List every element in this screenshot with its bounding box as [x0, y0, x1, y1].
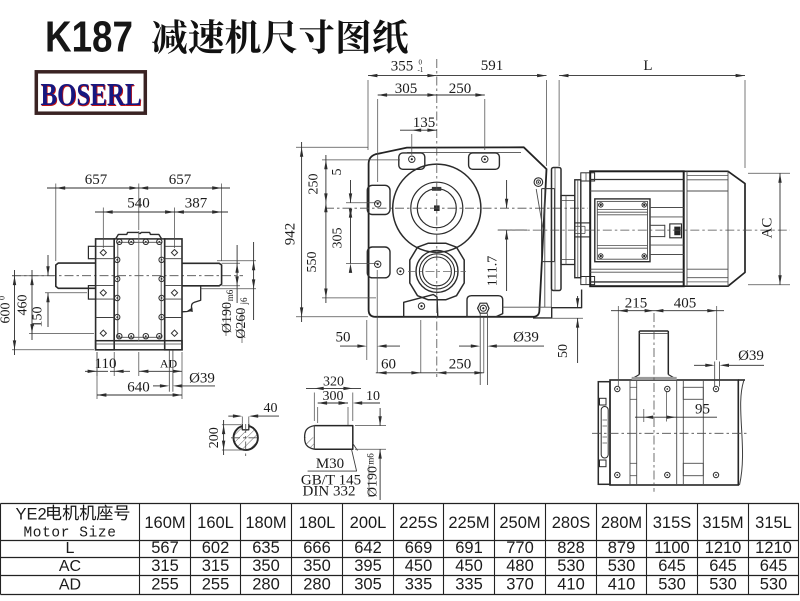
svg-text:591: 591: [481, 58, 504, 74]
svg-text:m6: m6: [366, 453, 376, 465]
svg-text:Ø190: Ø190: [366, 466, 381, 497]
svg-text:AD: AD: [160, 357, 178, 371]
svg-text:-1: -1: [418, 66, 424, 74]
svg-text:40: 40: [264, 401, 278, 416]
svg-text:95: 95: [695, 402, 710, 418]
svg-text:200L: 200L: [350, 514, 387, 532]
svg-text:280: 280: [252, 576, 280, 594]
svg-text:160L: 160L: [197, 514, 234, 532]
svg-text:387: 387: [185, 196, 208, 212]
svg-text:250: 250: [449, 81, 472, 97]
svg-text:530: 530: [608, 557, 636, 575]
svg-text:Ø39: Ø39: [513, 330, 539, 346]
svg-text:L: L: [66, 540, 75, 557]
svg-text:Ø190: Ø190: [220, 302, 235, 333]
svg-text:315L: 315L: [755, 514, 792, 532]
svg-text:540: 540: [127, 196, 150, 212]
svg-text:642: 642: [354, 539, 382, 557]
svg-text:215: 215: [625, 296, 648, 312]
svg-text:m6: m6: [225, 289, 235, 301]
svg-text:530: 530: [709, 576, 737, 594]
svg-text:691: 691: [455, 539, 483, 557]
svg-text:315S: 315S: [653, 514, 692, 532]
svg-text:370: 370: [506, 576, 534, 594]
svg-text:335: 335: [455, 576, 483, 594]
svg-text:5: 5: [330, 169, 345, 176]
svg-text:315M: 315M: [702, 514, 743, 532]
svg-text:0: 0: [0, 296, 7, 300]
svg-text:180M: 180M: [245, 514, 286, 532]
svg-text:DIN 332: DIN 332: [303, 484, 356, 500]
svg-text:450: 450: [455, 557, 483, 575]
svg-text:669: 669: [405, 539, 433, 557]
svg-text:305: 305: [395, 81, 418, 97]
svg-text:j6: j6: [239, 297, 249, 306]
svg-text:180L: 180L: [299, 514, 336, 532]
svg-text:602: 602: [202, 539, 230, 557]
svg-text:L: L: [643, 58, 652, 74]
svg-text:635: 635: [252, 539, 280, 557]
svg-text:645: 645: [760, 557, 788, 575]
svg-text:942: 942: [283, 223, 299, 246]
svg-text:280S: 280S: [552, 514, 591, 532]
svg-text:280M: 280M: [601, 514, 642, 532]
svg-text:567: 567: [151, 539, 179, 557]
svg-text:530: 530: [760, 576, 788, 594]
svg-text:315: 315: [202, 557, 230, 575]
svg-text:Ø39: Ø39: [738, 348, 764, 364]
svg-text:355: 355: [391, 59, 414, 75]
svg-text:645: 645: [709, 557, 737, 575]
svg-text:225M: 225M: [448, 514, 489, 532]
svg-text:111.7: 111.7: [486, 256, 501, 286]
svg-text:305: 305: [331, 228, 346, 249]
svg-text:K187: K187: [45, 13, 133, 62]
svg-text:AD: AD: [59, 577, 81, 594]
svg-text:335: 335: [405, 576, 433, 594]
svg-text:10: 10: [366, 389, 380, 404]
svg-text:YE2: YE2: [16, 506, 47, 524]
svg-text:828: 828: [557, 539, 585, 557]
svg-text:550: 550: [305, 252, 320, 273]
svg-text:320: 320: [323, 375, 344, 390]
svg-text:530: 530: [658, 576, 686, 594]
svg-text:110: 110: [95, 356, 117, 372]
svg-text:1210: 1210: [705, 539, 742, 557]
svg-text:250: 250: [307, 174, 322, 195]
svg-text:200: 200: [207, 427, 222, 448]
svg-text:480: 480: [506, 557, 534, 575]
svg-text:460: 460: [16, 295, 31, 316]
svg-text:50: 50: [556, 344, 571, 358]
svg-text:350: 350: [252, 557, 280, 575]
svg-text:657: 657: [169, 172, 192, 188]
svg-text:410: 410: [557, 576, 585, 594]
svg-text:1100: 1100: [654, 539, 689, 557]
svg-text:350: 350: [303, 557, 331, 575]
svg-text:BOSERL: BOSERL: [41, 77, 142, 112]
svg-text:600: 600: [0, 303, 14, 324]
svg-text:770: 770: [506, 539, 534, 557]
svg-text:666: 666: [303, 539, 331, 557]
svg-text:410: 410: [608, 576, 636, 594]
svg-text:135: 135: [413, 115, 436, 131]
svg-text:450: 450: [405, 557, 433, 575]
svg-text:AC: AC: [59, 558, 81, 575]
svg-text:Ø260: Ø260: [234, 308, 249, 339]
svg-text:280: 280: [303, 576, 331, 594]
svg-text:1210: 1210: [755, 539, 792, 557]
svg-text:305: 305: [354, 576, 382, 594]
svg-text:Ø39: Ø39: [189, 371, 215, 387]
svg-text:657: 657: [85, 172, 108, 188]
svg-text:405: 405: [674, 296, 697, 312]
svg-text:50: 50: [336, 330, 351, 346]
svg-text:150: 150: [31, 307, 46, 328]
svg-text:250M: 250M: [499, 514, 540, 532]
svg-text:879: 879: [608, 539, 636, 557]
svg-text:645: 645: [658, 557, 686, 575]
svg-text:250: 250: [449, 356, 472, 372]
svg-text:255: 255: [202, 576, 230, 594]
svg-text:640: 640: [127, 380, 150, 396]
svg-text:M30: M30: [316, 456, 344, 472]
svg-text:160M: 160M: [144, 514, 185, 532]
svg-text:530: 530: [557, 557, 585, 575]
svg-text:AC: AC: [760, 218, 776, 239]
svg-text:395: 395: [354, 557, 382, 575]
svg-text:225S: 225S: [399, 514, 438, 532]
svg-text:60: 60: [381, 356, 396, 372]
svg-text:315: 315: [151, 557, 179, 575]
svg-text:255: 255: [151, 576, 179, 594]
